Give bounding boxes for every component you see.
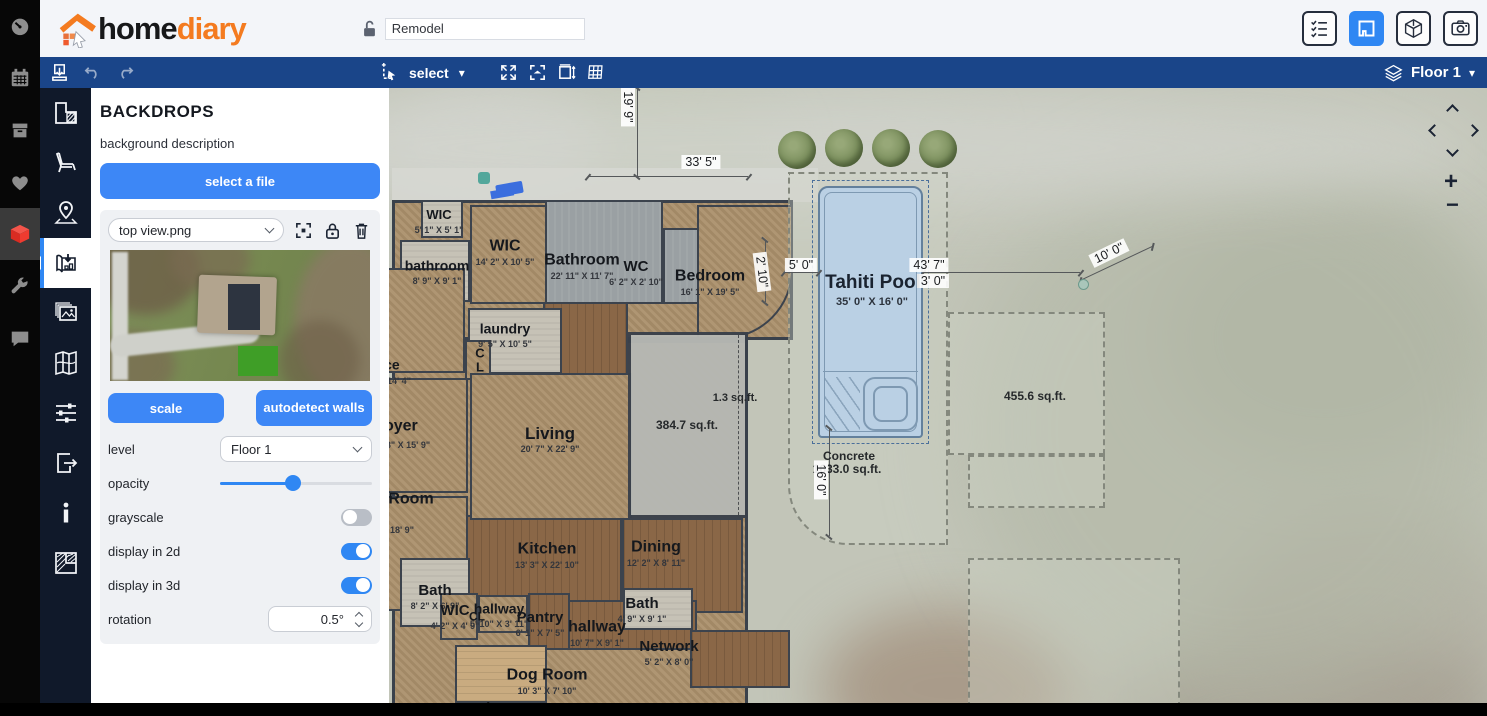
level-dropdown[interactable]: Floor 1 (220, 436, 372, 462)
zoom-in-button[interactable]: + (1444, 170, 1458, 194)
primary-sidebar (0, 0, 40, 716)
dimension-end-marker (1078, 279, 1089, 290)
save-icon[interactable] (50, 63, 69, 82)
project-name-input[interactable] (385, 18, 585, 40)
backdrop-file-name: top view.png (119, 223, 191, 238)
room-dims-foyer: 8" X 15' 9" (386, 440, 430, 450)
room-label-bath: Bath (625, 596, 658, 612)
slab-divider-line (738, 335, 739, 515)
room-label-dog-room: Dog Room (507, 668, 588, 685)
opacity-slider[interactable] (220, 475, 372, 491)
dimension-line (923, 272, 1080, 273)
pan-down-button[interactable] (1446, 144, 1459, 157)
room-label-c-l: C L (472, 346, 488, 373)
tool-backdrop-import[interactable] (40, 238, 91, 288)
room-dims-bathroom: 22' 11" X 11' 7" (551, 271, 614, 281)
room-dims-hallway: 5' 10" X 3' 11" (470, 619, 528, 629)
pool-steps (824, 377, 860, 431)
chevron-down-icon (265, 224, 275, 234)
backdrop-import-icon (53, 250, 79, 276)
view-3d-icon (1403, 18, 1424, 39)
utility-marker (478, 172, 490, 184)
sidebar-item-heart[interactable] (0, 156, 40, 208)
select-tool-icon[interactable] (380, 63, 399, 82)
room-dims-hallway: 10' 7" X 9' 1" (570, 638, 624, 648)
concrete-region[interactable] (968, 558, 1180, 708)
room-label-dining: Dining (631, 540, 681, 557)
homediary-logo[interactable]: homediary (54, 10, 246, 48)
select-dropdown-caret[interactable]: ▾ (459, 67, 465, 79)
pan-right-button[interactable] (1466, 124, 1479, 137)
zoom-out-button[interactable]: − (1446, 194, 1459, 216)
tahiti-pool[interactable] (818, 186, 923, 438)
wrench-icon (9, 275, 31, 297)
sidebar-item-wrench[interactable] (0, 260, 40, 312)
tool-floor-pattern[interactable] (40, 538, 91, 588)
concrete-region[interactable] (948, 312, 1105, 455)
tools-sidebar (40, 88, 91, 703)
panel-title: BACKDROPS (100, 102, 380, 122)
pan-left-button[interactable] (1428, 124, 1441, 137)
photos-icon (53, 300, 79, 326)
camera-button[interactable] (1443, 11, 1478, 46)
room-dims-wc: 6' 2" X 2' 10" (609, 277, 663, 287)
display-in-2d-label: display in 2d (108, 544, 180, 559)
checklist-button[interactable] (1302, 11, 1337, 46)
tool-rooms[interactable] (40, 88, 91, 138)
storage-box-icon (9, 119, 31, 141)
room-dims-room: 18' 9" (390, 525, 414, 535)
room-dims-wic: 14' 2" X 10' 5" (476, 257, 535, 267)
center-view-icon[interactable] (528, 63, 547, 82)
tool-location-pin[interactable] (40, 188, 91, 238)
dimension-label: 19' 9" (621, 88, 635, 127)
chevron-down-icon (353, 443, 363, 453)
room-dims-bath: 4' 9" X 9' 1" (618, 614, 667, 624)
room-label-bathroom: bathroom (405, 259, 470, 274)
floor-selector-caret[interactable]: ▾ (1469, 67, 1475, 79)
dashboard-icon (9, 15, 31, 37)
room-label-bathroom: Bathroom (544, 253, 620, 270)
room-label-wc: WC (624, 259, 649, 275)
room-dims-network: 5' 2" X 8' 0" (645, 657, 694, 667)
tool-info[interactable] (40, 488, 91, 538)
sidebar-item-product-cube[interactable] (0, 208, 40, 260)
tree (825, 129, 863, 167)
backdrop-file-dropdown[interactable]: top view.png (108, 218, 284, 242)
delete-backdrop-icon[interactable] (352, 219, 372, 241)
dimension-line (829, 428, 830, 536)
redo-icon[interactable] (116, 63, 135, 82)
floor-pattern-icon (53, 550, 79, 576)
view-3d-button[interactable] (1396, 11, 1431, 46)
grayscale-label: grayscale (108, 510, 164, 525)
backdrop-settings-card: top view.png (100, 210, 380, 644)
pan-up-button[interactable] (1446, 104, 1459, 117)
dimension-label: 10' 0" (1088, 238, 1129, 268)
concrete-region[interactable] (968, 455, 1105, 508)
tree (919, 130, 957, 168)
dimension-line (784, 272, 818, 273)
undo-icon[interactable] (83, 63, 102, 82)
select-tool-label[interactable]: select (409, 65, 449, 81)
dimension-label: 43' 7" (909, 258, 948, 272)
room-dims-living: 20' 7" X 22' 9" (521, 444, 580, 454)
heart-icon (9, 171, 31, 193)
rotation-input[interactable]: 0.5° (268, 606, 372, 632)
logo-house-icon (54, 10, 98, 48)
select-file-button[interactable]: select a file (100, 163, 380, 199)
floor-selector-label[interactable]: Floor 1 (1411, 64, 1461, 81)
export-icon (53, 450, 79, 476)
rotation-stepper-arrows[interactable] (356, 613, 362, 626)
dimension-label: 16' 0" (814, 460, 828, 499)
room-label-room: Room (388, 492, 433, 509)
center-backdrop-icon[interactable] (293, 219, 313, 241)
room-dims-bathroom: 8' 9" X 9' 1" (413, 276, 462, 286)
display-in-3d-label: display in 3d (108, 578, 180, 593)
furniture-chair-icon (53, 150, 79, 176)
room-label-wic: WIC (440, 603, 469, 619)
room-dims-pantry: 6' 1" X 7' 5" (516, 628, 565, 638)
sidebar-item-calendar[interactable] (0, 52, 40, 104)
grayscale-toggle[interactable] (341, 509, 372, 526)
room-label-network: Network (639, 639, 698, 655)
location-pin-icon (53, 200, 79, 226)
bottom-bar (0, 703, 1487, 716)
room-label-hallway: hallway (474, 602, 525, 617)
room-dims-wic: 5' 1" X 5' 1" (415, 225, 464, 235)
room-network[interactable] (690, 630, 790, 688)
view-mode-buttons (1302, 11, 1478, 46)
rotation-label: rotation (108, 612, 151, 627)
room-label-bedroom: Bedroom (675, 269, 745, 286)
fit-view-icon[interactable] (499, 63, 518, 82)
floorplan-2d-icon (1356, 18, 1377, 39)
layers-icon[interactable] (1384, 63, 1403, 82)
rooms-icon (53, 100, 79, 126)
room-dims-office: 14' 4" (387, 376, 411, 386)
dimension-label: 5' 0" (785, 258, 817, 272)
drawing-toolbar: select ▾ Floor 1 ▾ (40, 57, 1487, 88)
patio-deck-band (392, 168, 818, 202)
logo-text-home: home (98, 11, 177, 47)
calendar-icon (9, 67, 31, 89)
chat-icon (9, 327, 31, 349)
homediary-app: homediary select (0, 0, 1487, 716)
room-dims-dog-room: 10' 3" X 7' 10" (518, 686, 577, 696)
unlock-icon (362, 20, 377, 38)
floorplan-2d-button[interactable] (1349, 11, 1384, 46)
dimension-label: 3' 0" (917, 274, 949, 288)
area-label: 1.3 sq.ft. (713, 392, 758, 404)
tool-export[interactable] (40, 438, 91, 488)
tool-photos[interactable] (40, 288, 91, 338)
tool-furniture-chair[interactable] (40, 138, 91, 188)
app-header: homediary (40, 0, 1487, 57)
room-label-bath: Bath (418, 583, 451, 599)
tree (778, 131, 816, 169)
opacity-label: opacity (108, 476, 149, 491)
dimension-tool-icon[interactable] (557, 63, 576, 82)
area-label: Concrete (823, 449, 875, 463)
rotation-value: 0.5° (321, 612, 344, 627)
pool-name-label: Tahiti Pool (825, 272, 921, 294)
product-cube-icon (9, 223, 31, 245)
room-label-wic: WIC (426, 208, 451, 222)
map-book-icon (53, 350, 79, 376)
info-icon (53, 500, 79, 526)
level-value: Floor 1 (231, 442, 271, 457)
room-dims-dining: 12' 2" X 8' 11" (627, 558, 685, 568)
room-dims-kitchen: 13' 3" X 22' 10" (515, 560, 579, 570)
dimension-line (588, 176, 748, 177)
level-label: level (108, 442, 135, 457)
tree (872, 129, 910, 167)
logo-text-diary: diary (177, 11, 246, 47)
backdrop-thumbnail[interactable] (110, 250, 370, 381)
tool-adjust-sliders[interactable] (40, 388, 91, 438)
room-dims-bedroom: 16' 1" X 19' 5" (681, 287, 740, 297)
lock-backdrop-icon[interactable] (322, 219, 342, 241)
display-in-3d-toggle[interactable] (341, 577, 372, 594)
adjust-sliders-icon (53, 400, 79, 426)
dimension-label: 33' 5" (681, 155, 720, 169)
room-label-living: Living (525, 425, 575, 443)
scale-button[interactable]: scale (108, 393, 224, 423)
grid-tool-icon[interactable] (586, 63, 605, 82)
area-label: 455.6 sq.ft. (1004, 389, 1066, 403)
background-description-label: background description (100, 136, 380, 151)
photo-texture (1220, 508, 1487, 716)
photo-texture (1160, 208, 1487, 468)
sidebar-item-dashboard[interactable] (0, 0, 40, 52)
room-label-kitchen: Kitchen (518, 542, 577, 559)
camera-icon (1450, 18, 1471, 39)
autodetect-walls-button[interactable]: autodetect walls (256, 390, 372, 426)
backdrops-panel: BACKDROPS background description select … (91, 88, 389, 703)
room-label-laundry: laundry (480, 322, 531, 337)
checklist-icon (1309, 18, 1330, 39)
sidebar-item-chat[interactable] (0, 312, 40, 364)
room-label-wic: WIC (489, 239, 520, 256)
opacity-slider-knob[interactable] (285, 475, 301, 491)
area-label: 384.7 sq.ft. (656, 418, 718, 432)
tool-map-book[interactable] (40, 338, 91, 388)
dimension-line (637, 88, 638, 176)
pool-dims-label: 35' 0" X 16' 0" (836, 296, 908, 308)
sidebar-item-storage-box[interactable] (0, 104, 40, 156)
display-in-2d-toggle[interactable] (341, 543, 372, 560)
